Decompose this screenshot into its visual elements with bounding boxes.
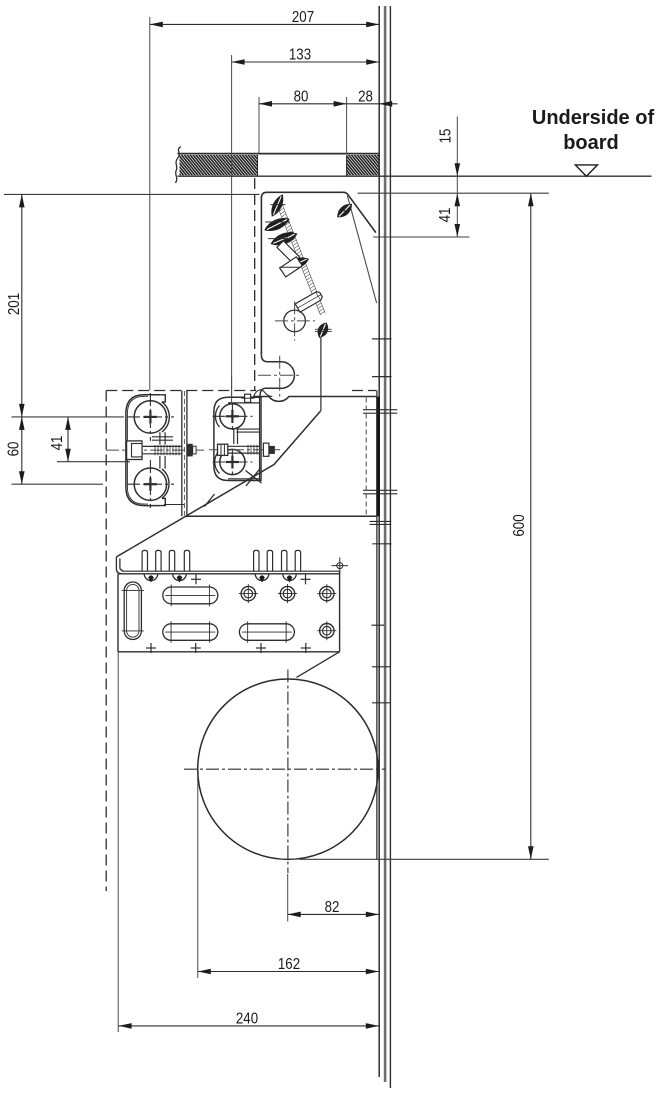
svg-text:82: 82 [325, 899, 340, 916]
svg-text:41: 41 [49, 436, 66, 451]
svg-text:162: 162 [278, 956, 300, 973]
svg-text:60: 60 [6, 442, 23, 457]
svg-text:600: 600 [511, 514, 528, 536]
svg-text:28: 28 [358, 89, 373, 106]
svg-text:80: 80 [294, 89, 309, 106]
svg-text:Underside of: Underside of [532, 107, 655, 129]
svg-text:41: 41 [437, 208, 454, 223]
svg-text:201: 201 [6, 293, 23, 315]
svg-text:15: 15 [438, 129, 455, 144]
svg-text:240: 240 [236, 1011, 258, 1028]
svg-text:board: board [563, 132, 619, 154]
svg-text:207: 207 [292, 9, 314, 26]
svg-text:133: 133 [289, 47, 311, 64]
